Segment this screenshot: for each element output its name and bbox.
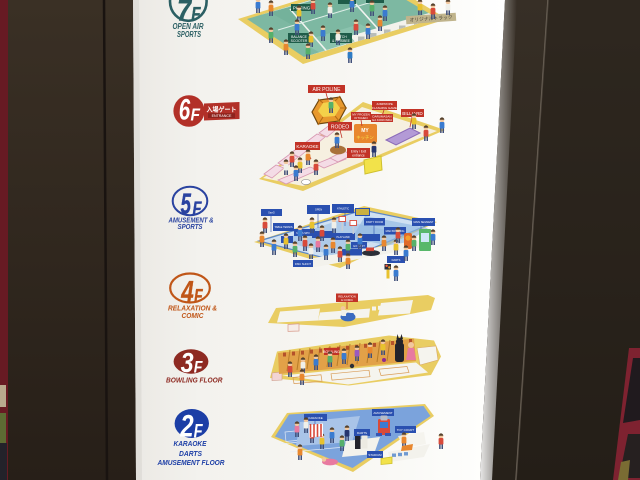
svg-text:SPORTS: SPORTS [177,30,202,39]
svg-text:TABLE TENNIS: TABLE TENNIS [274,225,292,229]
svg-text:SPORTS: SPORTS [178,222,203,231]
svg-text:KARAOKE: KARAOKE [308,416,323,420]
svg-text:DARTS: DARTS [392,258,401,262]
svg-text:DARTS: DARTS [357,431,367,435]
svg-text:SanG: SanG [268,211,275,215]
svg-text:入場ゲート: 入場ゲート [207,105,237,114]
svg-text:ATHLETIC: ATHLETIC [337,207,349,211]
svg-text:3: 3 [181,347,194,378]
svg-text:MAD BOWLING: MAD BOWLING [386,229,405,233]
svg-text:OPEN: OPEN [315,208,322,212]
svg-text:F: F [191,105,202,125]
svg-text:DISC SHOOT: DISC SHOOT [295,262,312,266]
svg-text:6: 6 [179,94,191,127]
svg-text:AIR POLINE: AIR POLINE [312,87,341,93]
svg-text:STADIUM: STADIUM [368,453,382,457]
svg-text:キッチン: キッチン [356,135,374,140]
svg-text:MAIN SEGMENT: MAIN SEGMENT [413,220,433,224]
svg-text:KITCHEN: KITCHEN [354,116,367,120]
svg-text:ENTRANCE: ENTRANCE [212,114,232,118]
svg-text:KARAOKE: KARAOKE [296,144,318,149]
svg-text:DARTS: DARTS [179,449,202,458]
svg-text:AMUSEMENT: AMUSEMENT [373,411,392,415]
svg-text:FLASHING GAME: FLASHING GAME [372,106,397,110]
svg-text:PLAYLAND: PLAYLAND [336,235,349,239]
svg-text:MY: MY [361,128,369,134]
svg-text:COMIC: COMIC [182,311,205,320]
svg-text:SCOOTER: SCOOTER [291,39,308,43]
svg-text:TOY COURT: TOY COURT [397,428,415,432]
svg-text:KARAOKE: KARAOKE [174,439,207,448]
svg-text:& COMIC: & COMIC [341,298,353,302]
svg-text:F: F [194,358,203,377]
svg-text:entrance: entrance [352,153,365,157]
svg-text:PARTY ROOM: PARTY ROOM [366,220,383,224]
svg-text:BOWLING FLOOR: BOWLING FLOOR [166,376,223,385]
svg-text:& FRISBEE: & FRISBEE [332,39,350,43]
svg-text:AMUSEMENT FLOOR: AMUSEMENT FLOOR [157,458,226,467]
svg-text:GA KORONDA: GA KORONDA [372,118,392,122]
svg-text:RODEO: RODEO [331,125,349,131]
svg-text:PITTING: PITTING [293,6,311,11]
